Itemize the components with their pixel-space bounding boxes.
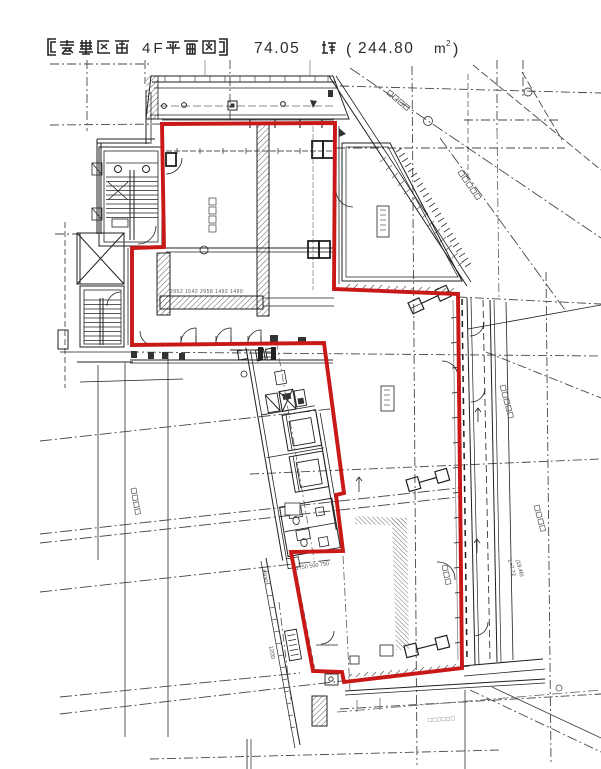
svg-text:2: 2 (446, 39, 451, 48)
svg-text:74.05: 74.05 (254, 40, 300, 57)
svg-text:): ) (453, 41, 458, 58)
svg-text:m: m (434, 40, 446, 56)
svg-text:□□□□□□: □□□□□□ (428, 716, 456, 724)
svg-text:2952 1542 2958 1492: 2952 1542 2958 1492 1490 (170, 289, 243, 295)
svg-text:(: ( (346, 41, 352, 58)
svg-text:1750 500 750: 1750 500 750 (295, 561, 329, 572)
svg-text:244.80: 244.80 (358, 40, 414, 57)
svg-text:K930: K930 (260, 569, 268, 583)
svg-text:1200: 1200 (267, 645, 275, 660)
svg-text:4F: 4F (142, 40, 166, 57)
